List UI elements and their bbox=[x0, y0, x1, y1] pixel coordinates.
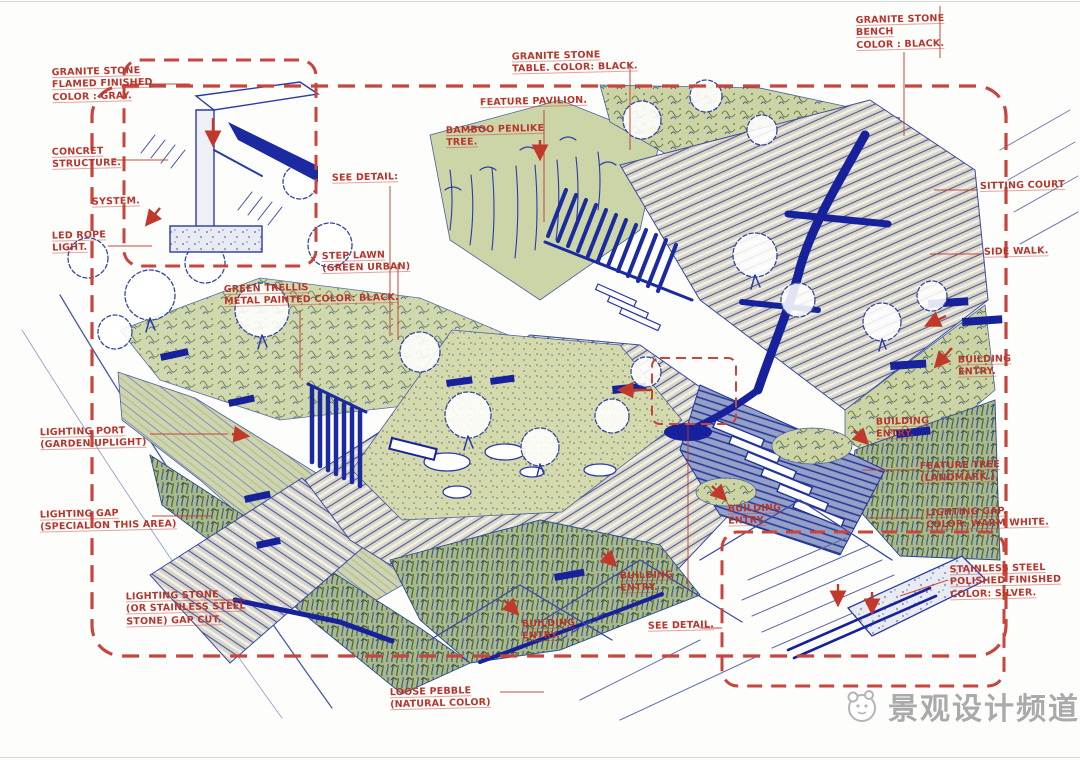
annotation-led-rope: LED ROPE LIGHT. bbox=[52, 229, 107, 255]
annotation-granite-flamed: GRANITE STONE FLAMED FINISHED COLOR : GR… bbox=[52, 65, 154, 104]
inset-bench-detail bbox=[141, 82, 318, 252]
annotation-step-lawn: STEP LAWN (GREEN URBAN) bbox=[322, 249, 411, 276]
annotation-stainless-steel: STAINLESS STEEL POLISHED FINISHED COLOR:… bbox=[950, 562, 1062, 602]
annotation-feature-tree: FEATURE TREE (LANDMARK.) bbox=[920, 459, 1001, 486]
annotation-building-entry-c1: BUILDING ENTRY. bbox=[728, 502, 782, 528]
annotation-lighting-gap-warm: LIGHTING GAP. COLOR: WARM WHITE. bbox=[926, 505, 1049, 533]
watermark: 景观设计频道 bbox=[842, 684, 1080, 728]
annotation-building-entry-c2: BUILDING ENTRY. bbox=[620, 569, 674, 595]
annotation-granite-bench: GRANITE STONE BENCH COLOR : BLACK. bbox=[856, 13, 946, 52]
annotation-feature-pavilion: FEATURE PAVILION. bbox=[480, 95, 587, 110]
annotation-sitting-court: SITTING COURT bbox=[980, 179, 1065, 193]
annotation-see-detail-bottom: SEE DETAIL. bbox=[648, 619, 714, 633]
annotation-loose-pebble: LOOSE PEBBLE (NATURAL COLOR) bbox=[390, 685, 491, 712]
annotation-lighting-stone: LIGHTING STONE (OR STAINLESS STEEL STONE… bbox=[126, 589, 247, 629]
annotation-lighting-port: LIGHTING PORT (GARDEN UPLIGHT) bbox=[40, 425, 147, 452]
sidewalk-lines bbox=[1000, 110, 1078, 244]
annotation-lighting-gap-special: LIGHTING GAP (SPECIAL ON THIS AREA) bbox=[40, 506, 177, 534]
annotation-building-entry-r1: BUILDING ENTRY. bbox=[958, 353, 1012, 379]
watermark-text: 景观设计频道 bbox=[888, 684, 1080, 728]
sketch-page: GRANITE STONE FLAMED FINISHED COLOR : GR… bbox=[0, 0, 1080, 760]
annotation-building-entry-c3: BUILDING ENTRY. bbox=[522, 617, 576, 643]
sketch-canvas bbox=[0, 0, 1080, 760]
annotation-bamboo-tree: BAMBOO PENLIKE TREE. bbox=[446, 123, 545, 150]
annotation-concrete-structure: CONCRET STRUCTURE. bbox=[52, 145, 122, 171]
pavilion-steps bbox=[596, 284, 661, 331]
annotation-system: SYSTEM. bbox=[92, 195, 140, 209]
annotation-building-entry-r2: BUILDING ENTRY. bbox=[876, 415, 930, 441]
annotation-see-detail-left: SEE DETAIL: bbox=[332, 171, 398, 185]
annotation-green-trellis: GREEN TRELLIS METAL PAINTED COLOR: BLACK… bbox=[224, 280, 399, 309]
watermark-logo-icon bbox=[842, 686, 882, 726]
annotation-side-walk: SIDE WALK. bbox=[984, 245, 1049, 259]
annotation-granite-table: GRANITE STONE TABLE. COLOR: BLACK. bbox=[512, 48, 638, 76]
